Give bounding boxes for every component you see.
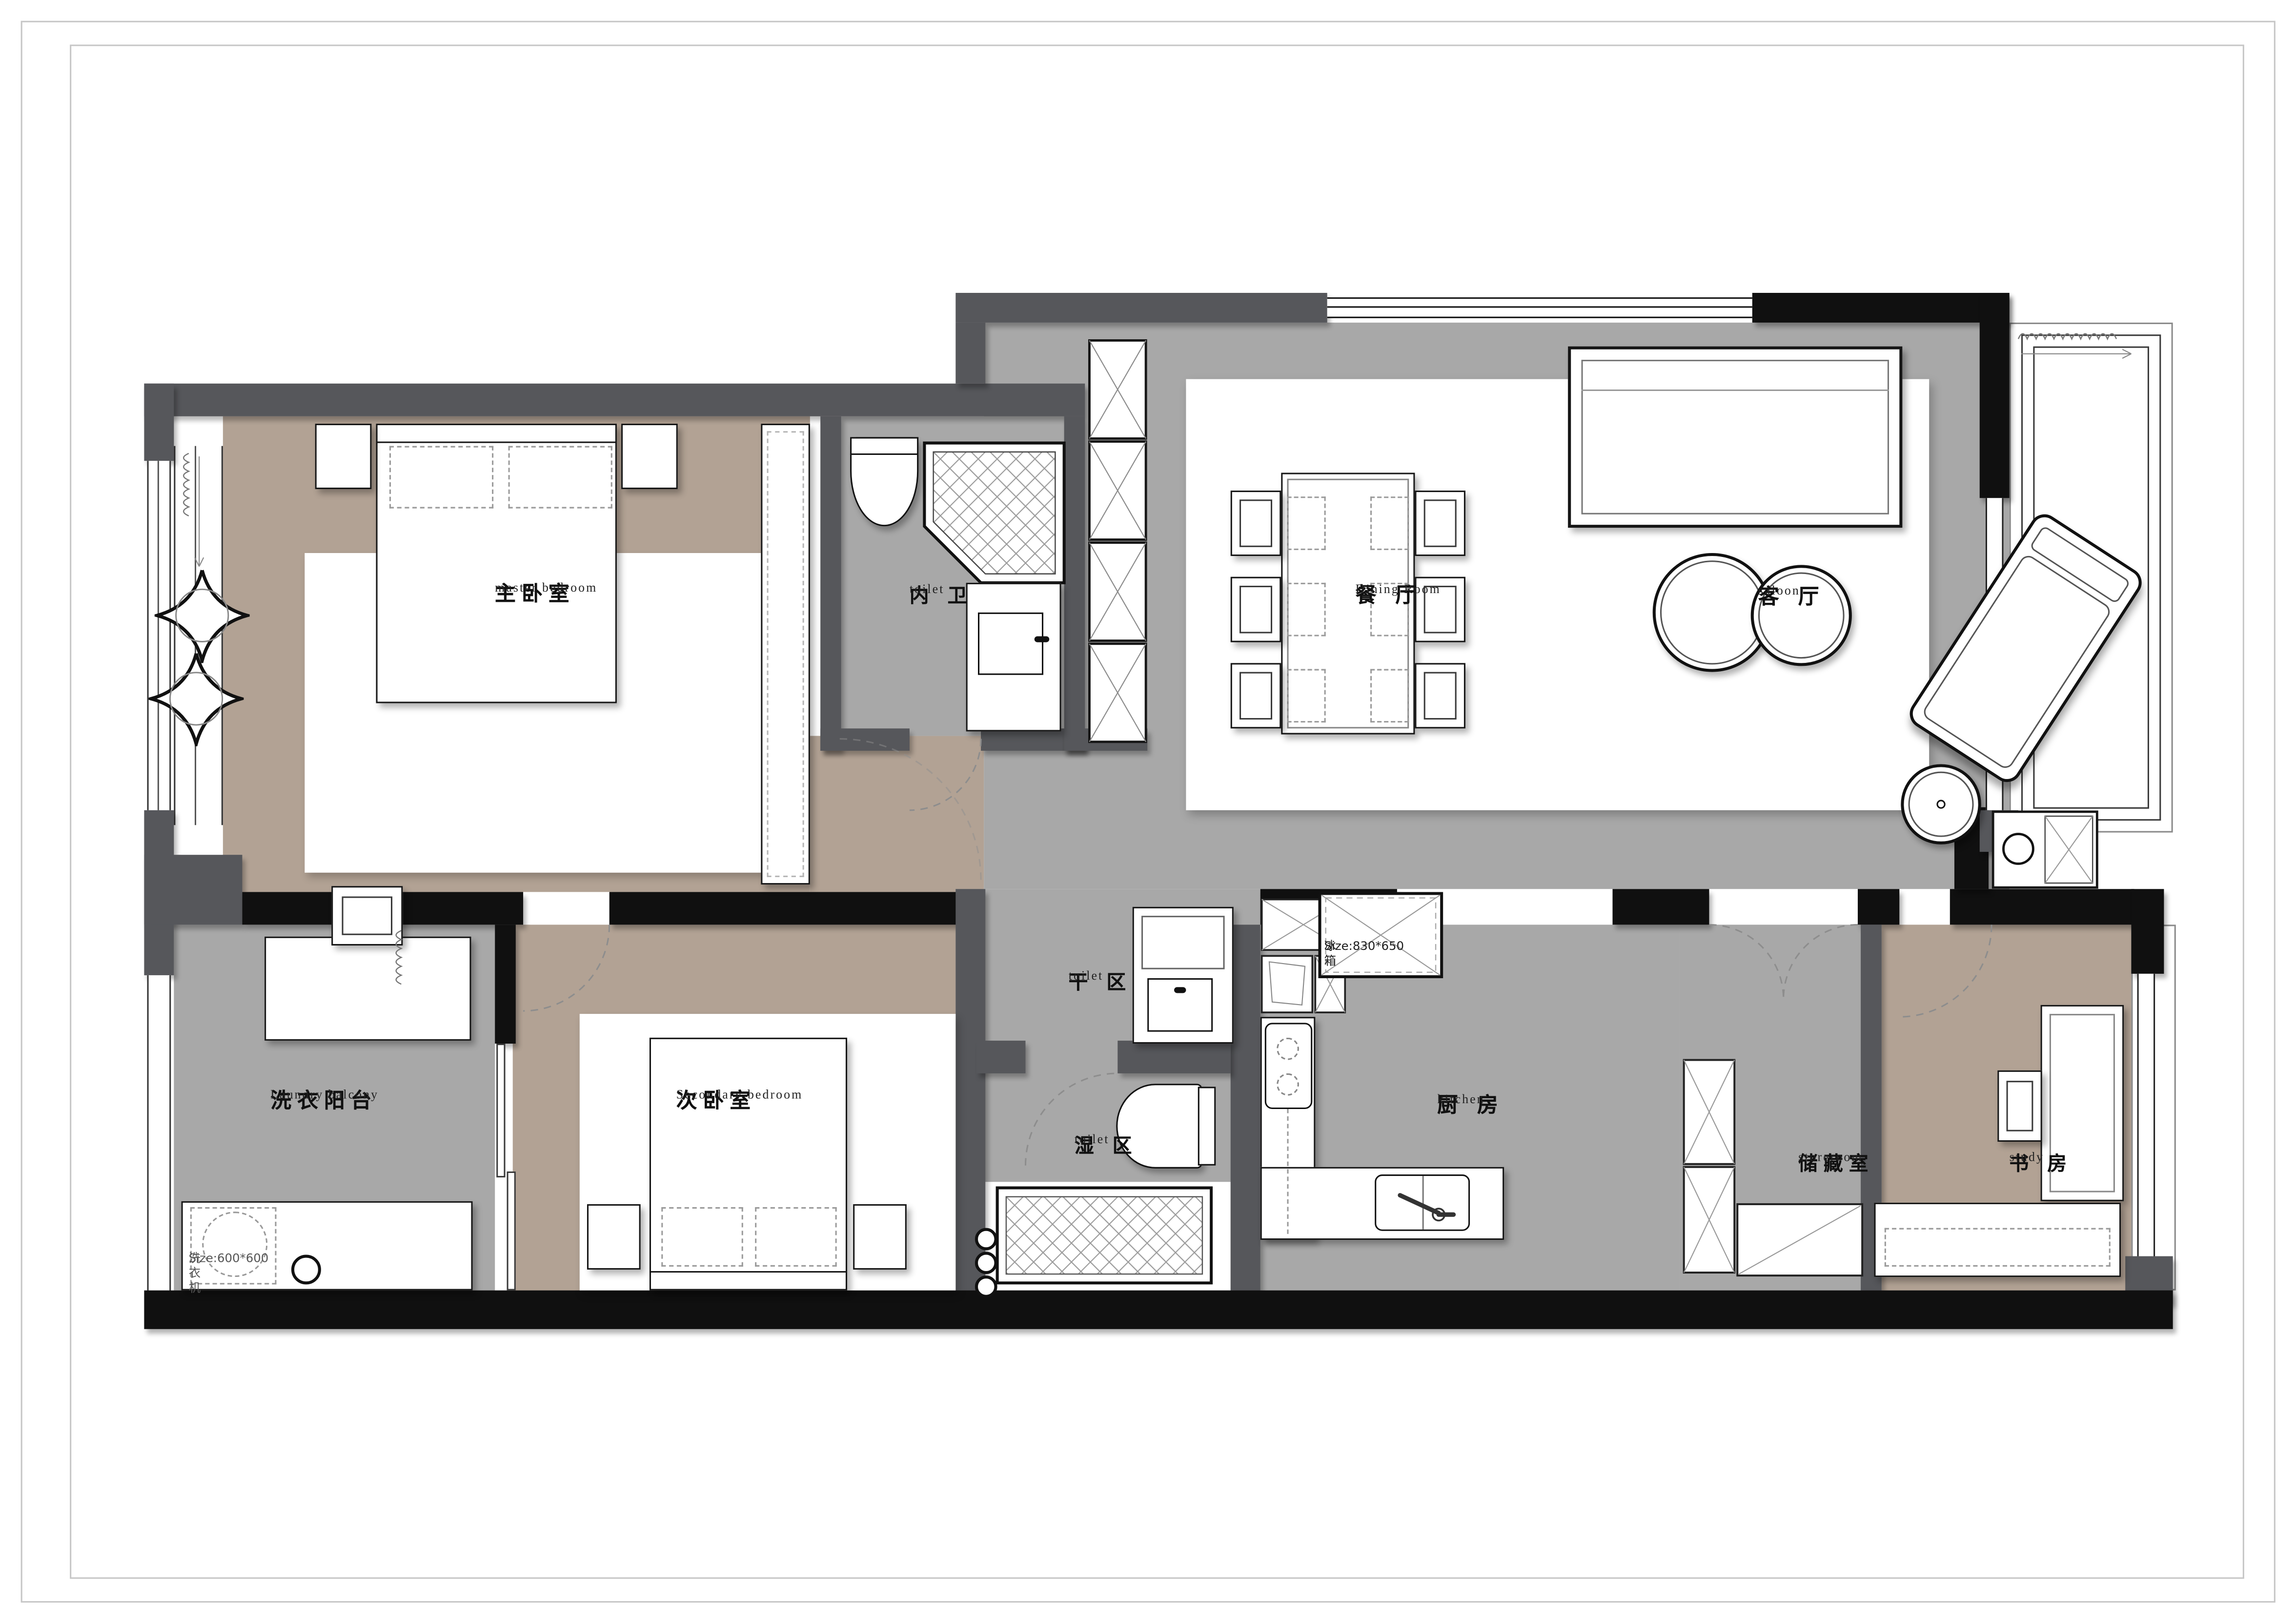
room-name-en: toilet — [1075, 1131, 1110, 1146]
room-name-en: Secondary bedroom — [676, 1087, 803, 1101]
room-name-en: kitchen — [1437, 1091, 1485, 1106]
floor-plan-sheet: 冰箱 Size:830*650 洗衣机 Size:600*600 — [0, 0, 2296, 1624]
room-name-en: saloon — [1758, 583, 1800, 597]
room-name-en: toilet — [910, 581, 945, 596]
room-name-en: study — [2010, 1149, 2044, 1164]
room-name-en: Dining Room — [1356, 581, 1441, 596]
room-name-en: toilet — [1069, 968, 1104, 983]
room-name-en: storeroom — [1798, 1149, 1863, 1164]
room-name-en: Laundry balcony — [270, 1087, 379, 1101]
door-swing-arcs — [0, 0, 2296, 1624]
room-name-en: master bedroom — [495, 580, 597, 595]
